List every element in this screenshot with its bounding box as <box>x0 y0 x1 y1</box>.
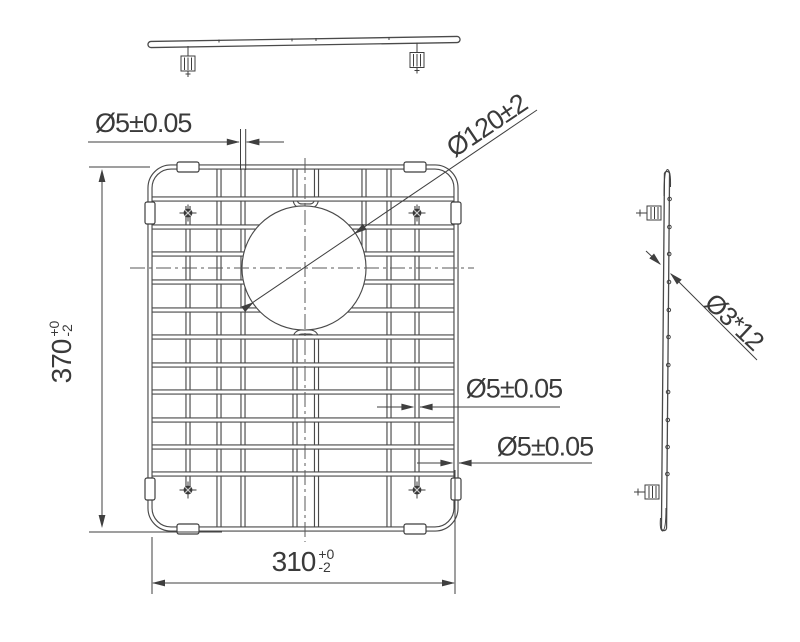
height-tolerance: +0 -2 <box>48 321 74 337</box>
width-value: 310 <box>272 546 316 578</box>
foot-screw-head-icon <box>409 482 426 499</box>
foot-screw-head-icon <box>180 205 197 222</box>
arrow-icon <box>246 139 259 146</box>
tab-bottom-right <box>404 524 426 534</box>
center-wire-bracket-bottom <box>295 332 317 527</box>
arrow-icon <box>99 169 106 182</box>
dimension-label-width: 310 +0 -2 <box>272 546 335 578</box>
foot-screw-icon <box>181 46 195 77</box>
foot-screw-icon <box>636 206 661 220</box>
arrow-icon <box>420 404 433 411</box>
tab-top-left <box>177 162 199 172</box>
dimension-label-mid-wire: Ø5±0.05 <box>466 374 562 405</box>
top-view <box>151 37 457 77</box>
height-value: 370 <box>46 340 78 384</box>
side-view <box>634 170 671 532</box>
foot-screw-head-icon <box>180 482 197 499</box>
arrow-icon <box>99 515 106 528</box>
front-view-grid <box>150 167 456 529</box>
dimension-label-edge-wire: Ø5±0.05 <box>497 432 593 463</box>
foot-screw-icon <box>634 485 659 499</box>
tab-left-lower <box>145 478 155 500</box>
arrow-icon <box>152 580 165 587</box>
arrow-icon <box>459 460 472 467</box>
tab-right-upper <box>451 202 461 224</box>
arrow-icon <box>227 139 240 146</box>
tab-top-right <box>404 162 426 172</box>
arrow-icon <box>401 404 414 411</box>
dimension-label-height: 370 +0 -2 <box>46 321 78 384</box>
foot-screw-head-icon <box>409 205 426 222</box>
arrow-icon <box>442 580 455 587</box>
tab-left-upper <box>145 202 155 224</box>
drawing-canvas <box>0 0 800 642</box>
technical-drawing-sink-grid: Ø5±0.05 Ø120±2 370 +0 -2 310 +0 -2 Ø5±0.… <box>0 0 800 642</box>
tab-right-lower <box>451 478 461 500</box>
arrow-icon <box>440 460 453 467</box>
center-wire-bracket-bottom <box>295 332 317 527</box>
dimension-label-top-wire: Ø5±0.05 <box>95 108 191 139</box>
foot-screw-icon <box>410 43 424 74</box>
width-tolerance: +0 -2 <box>318 548 334 574</box>
